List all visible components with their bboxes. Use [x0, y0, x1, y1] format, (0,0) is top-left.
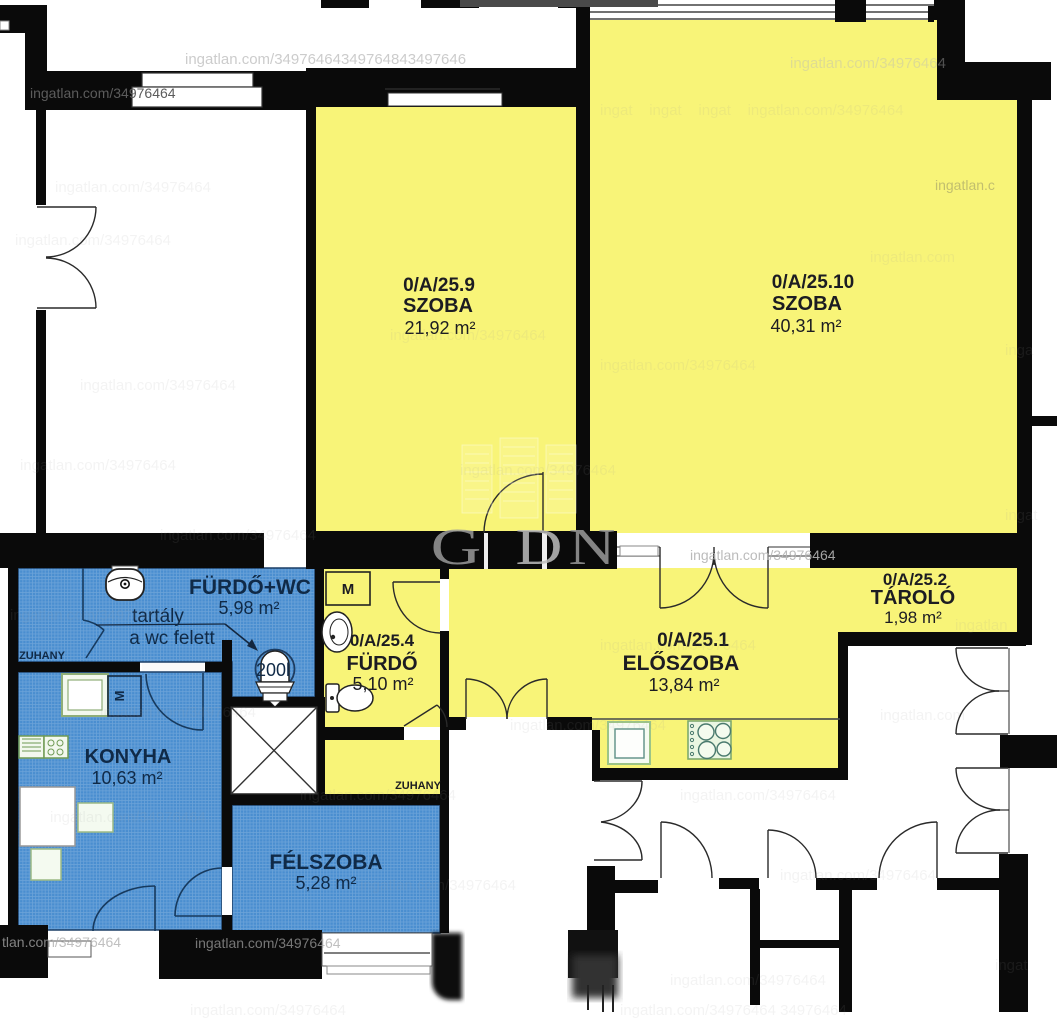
svg-text:ingatlan.com: ingatlan.com — [870, 249, 955, 266]
svg-text:ingatlan.com/34976464349764843: ingatlan.com/34976464349764843497646 — [185, 51, 466, 68]
svg-text:0/A/25.10: 0/A/25.10 — [772, 272, 854, 293]
svg-text:13,84 m²: 13,84 m² — [648, 675, 719, 695]
svg-text:ingatlan.com/34976464: ingatlan.com/34976464 — [360, 877, 516, 894]
svg-text:0/A/25.9: 0/A/25.9 — [403, 275, 475, 296]
svg-text:ingatlan: ingatlan — [955, 617, 1008, 634]
svg-text:N: N — [569, 518, 616, 575]
svg-text:ingatlan.com/34976464: ingatlan.com/34976464 — [690, 547, 836, 563]
svg-text:FÜRDŐ: FÜRDŐ — [346, 652, 417, 675]
svg-text:40,31 m²: 40,31 m² — [770, 316, 841, 336]
svg-text:a wc felett: a wc felett — [129, 628, 215, 649]
svg-text:ingatlan.com/34976464: ingatlan.com/34976464 — [390, 327, 546, 344]
svg-text:ingat: ingat — [1005, 507, 1038, 524]
svg-text:ingatlan.com/34976464: ingatlan.com/34976464 — [20, 457, 176, 474]
svg-text:5,98 m²: 5,98 m² — [218, 598, 279, 618]
svg-text:ingatlan.com/34976464: ingatlan.com/34976464 — [10, 607, 166, 624]
svg-text:ingatlan.com/34976464: ingatlan.com/34976464 — [790, 55, 946, 72]
svg-text:ZUHANY: ZUHANY — [19, 650, 65, 662]
svg-text:ingatlan.com/34976464 34976464: ingatlan.com/34976464 34976464 — [620, 1002, 847, 1019]
svg-text:ingatlan.c: ingatlan.c — [935, 177, 995, 193]
svg-text:200l: 200l — [256, 660, 290, 680]
svg-text:M: M — [112, 691, 127, 702]
svg-text:ingatlan.com/34976464: ingatlan.com/34976464 — [195, 935, 341, 951]
svg-text:ingatlan.com/34976464: ingatlan.com/34976464 — [100, 704, 256, 721]
svg-text:1,98 m²: 1,98 m² — [884, 608, 942, 627]
svg-text:ingatlan.com/34976464: ingatlan.com/34976464 — [510, 717, 666, 734]
svg-text:ingatlan.com/34976464: ingatlan.com/34976464 — [30, 85, 176, 101]
svg-text:ingatlan.com/34976464: ingatlan.com/34976464 — [50, 809, 206, 826]
svg-text:0/A/25.4: 0/A/25.4 — [350, 631, 415, 650]
svg-text:M: M — [342, 581, 355, 598]
svg-text:ingatlan.com/34976464: ingatlan.com/34976464 — [600, 637, 756, 654]
svg-text:ingatlan.com/34976464: ingatlan.com/34976464 — [460, 462, 616, 479]
svg-text:TÁROLÓ: TÁROLÓ — [871, 585, 955, 609]
svg-text:10,63 m²: 10,63 m² — [91, 768, 162, 788]
svg-text:ingatlan.com/34976464: ingatlan.com/34976464 — [600, 357, 756, 374]
svg-text:KONYHA: KONYHA — [85, 746, 172, 768]
svg-text:ingatlan.com/34976464: ingatlan.com/34976464 — [670, 972, 826, 989]
svg-text:ingatlan.com/34976464: ingatlan.com/34976464 — [780, 867, 936, 884]
svg-text:FÉLSZOBA: FÉLSZOBA — [269, 851, 382, 874]
svg-text:ELŐSZOBA: ELŐSZOBA — [623, 652, 740, 675]
svg-text:FÜRDŐ+WC: FÜRDŐ+WC — [189, 576, 311, 599]
svg-text:tlan.com/34976464: tlan.com/34976464 — [2, 934, 121, 950]
svg-text:ingatlan.com/34976464: ingatlan.com/34976464 — [55, 179, 211, 196]
svg-text:ingatlan.com/34976464: ingatlan.com/34976464 — [160, 527, 316, 544]
svg-text:inga: inga — [1005, 342, 1034, 359]
svg-text:D: D — [516, 518, 563, 575]
svg-text:5,28 m²: 5,28 m² — [295, 873, 356, 893]
svg-text:SZOBA: SZOBA — [772, 293, 842, 315]
svg-text:ingatlan.com/34976464: ingatlan.com/34976464 — [80, 377, 236, 394]
svg-text:ingatlan.com/34976464: ingatlan.com/34976464 — [190, 1002, 346, 1019]
svg-text:ingatlan.com: ingatlan.com — [880, 707, 965, 724]
svg-text:ingatlan.com/34976464: ingatlan.com/34976464 — [680, 787, 836, 804]
svg-text:ingatlan.com/34976464: ingatlan.com/34976464 — [15, 232, 171, 249]
svg-text:ingatlan.com/34976464: ingatlan.com/34976464 — [300, 787, 456, 804]
svg-text:5,10 m²: 5,10 m² — [352, 674, 413, 694]
svg-text:SZOBA: SZOBA — [403, 295, 473, 317]
svg-text:G: G — [431, 519, 482, 576]
svg-text:ingat ingat ingat ing: ingat ingat ingat ingatlan.com/34976464 — [600, 102, 904, 119]
svg-text:ingat: ingat — [995, 957, 1028, 974]
